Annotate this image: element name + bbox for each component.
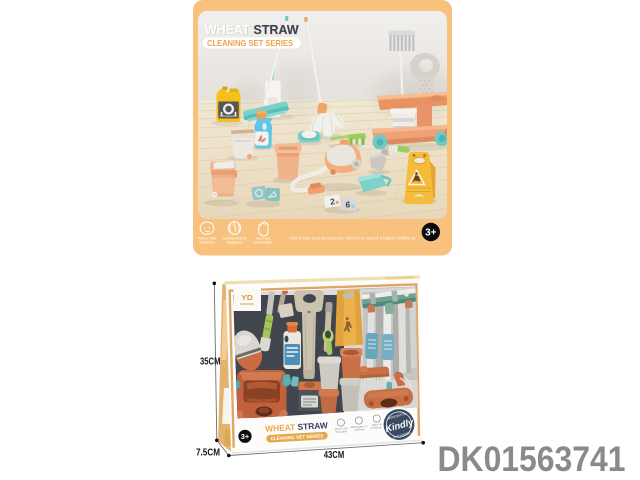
- svg-text:YD: YD: [241, 293, 254, 302]
- svg-text:7.5CM: 7.5CM: [196, 448, 220, 459]
- svg-text:3+: 3+: [241, 432, 250, 441]
- svg-text:35CM: 35CM: [200, 357, 221, 368]
- svg-text:43CM: 43CM: [324, 450, 345, 461]
- svg-text:3+: 3+: [425, 228, 437, 239]
- svg-text:WHEAT STRAW: WHEAT STRAW: [205, 22, 299, 37]
- svg-text:coordination: coordination: [254, 241, 273, 245]
- svg-text:interaction: interaction: [199, 241, 215, 245]
- svg-text:Play house toys accompany chi: Play house toys accompany children to sp…: [289, 236, 416, 241]
- svg-text:Education: Education: [336, 429, 348, 434]
- svg-text:DK01563741: DK01563741: [438, 439, 626, 479]
- svg-text:1200mah: 1200mah: [354, 427, 366, 432]
- svg-text:CLEANING SET SERIES: CLEANING SET SERIES: [207, 39, 293, 48]
- svg-text:intelligence: intelligence: [226, 241, 243, 245]
